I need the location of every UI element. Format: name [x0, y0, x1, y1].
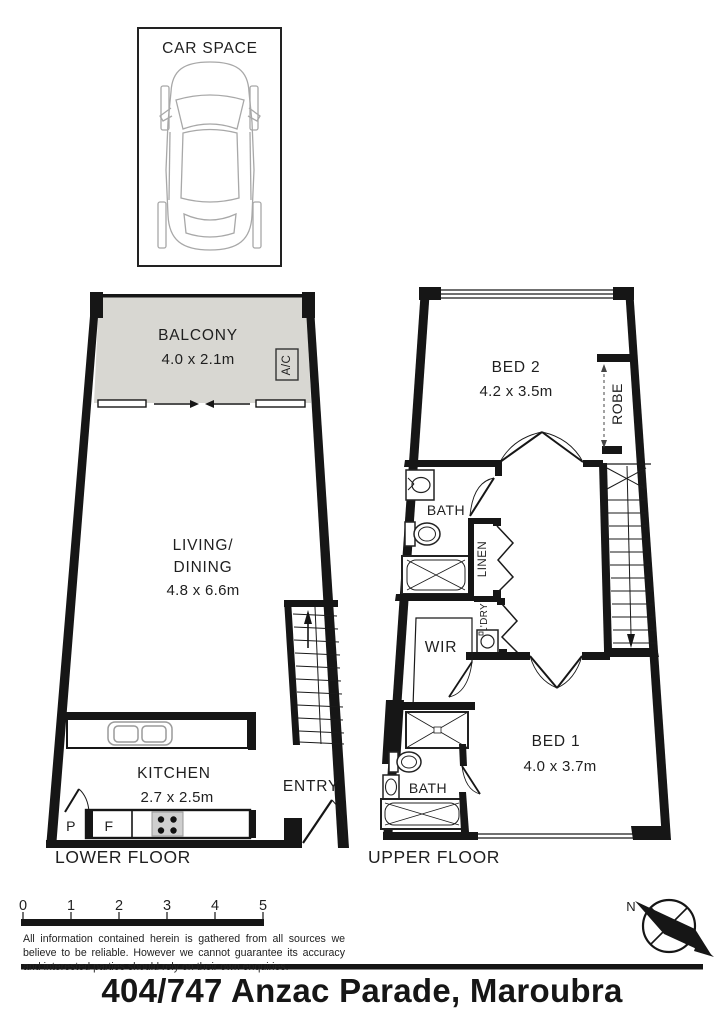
- upper-floor-plan: BED 2 4.2 x 3.5m ROBE: [368, 287, 671, 867]
- shower-icon: [406, 712, 468, 748]
- toilet-icon: [405, 522, 440, 546]
- floorplan-drawing: CAR SPACE BALCONY 4.0 x 2.1m: [0, 0, 724, 1024]
- balcony-dims: 4.0 x 2.1m: [161, 351, 234, 368]
- living-dining-room: LIVING/ DINING 4.8 x 6.6m: [166, 537, 239, 599]
- scale-tick-1: 1: [67, 898, 75, 914]
- floorplan-page: CAR SPACE BALCONY 4.0 x 2.1m: [0, 0, 724, 1024]
- washing-machine-icon: [477, 630, 498, 653]
- bath-door-icon: [470, 478, 494, 516]
- lower-left-wall: [46, 292, 100, 848]
- bed1-dims: 4.0 x 3.7m: [523, 758, 596, 775]
- bed1-window: [478, 834, 637, 838]
- pantry-door-icon: [65, 789, 89, 812]
- north-label: N: [626, 899, 635, 914]
- upper-floor-label: UPPER FLOOR: [368, 847, 500, 867]
- compass-icon: N: [626, 899, 714, 957]
- lower-floor-plan: BALCONY 4.0 x 2.1m A/C LIVING/ DIN: [46, 292, 349, 867]
- vanity-sink-icon: [406, 470, 434, 500]
- linen-label: LINEN: [477, 541, 489, 577]
- upper-bottom-wall: [383, 832, 478, 840]
- upper-right-wall: [625, 288, 671, 840]
- car-space-border: [138, 28, 281, 266]
- address-title: 404/747 Anzac Parade, Maroubra: [0, 972, 724, 1010]
- bed2-room: BED 2 4.2 x 3.5m: [479, 359, 552, 400]
- bath-main-label: BATH: [427, 502, 465, 518]
- entry-step: [284, 818, 302, 848]
- basin-icon: [383, 775, 399, 799]
- scale-tick-4: 4: [211, 898, 219, 914]
- living-dims: 4.8 x 6.6m: [166, 582, 239, 599]
- ensuite-bath-room: BATH: [381, 700, 480, 832]
- laundry-bifold-icon: [502, 604, 518, 653]
- scale-tick-5: 5: [259, 898, 267, 914]
- bed2-dims: 4.2 x 3.5m: [479, 383, 552, 400]
- bath-main-room: BATH: [395, 460, 502, 601]
- ensuite-door-icon: [462, 766, 480, 794]
- linen-closet: LINEN: [474, 518, 513, 602]
- lower-floor-label: LOWER FLOOR: [55, 847, 191, 867]
- wir-label: WIR: [425, 639, 458, 656]
- wir-door-icon: [449, 662, 472, 697]
- scale-tick-3: 3: [163, 898, 171, 914]
- laundry-label: L'DRY: [479, 603, 490, 633]
- laundry-closet: L'DRY: [477, 598, 518, 656]
- bathtub-icon: [402, 556, 470, 594]
- wir-room: WIR: [396, 618, 475, 710]
- car-space-title: CAR SPACE: [162, 40, 258, 57]
- robe-label: ROBE: [609, 383, 625, 425]
- bed2-label: BED 2: [492, 359, 541, 376]
- bed1-label: BED 1: [532, 733, 581, 750]
- balcony-room: BALCONY 4.0 x 2.1m A/C: [90, 292, 315, 408]
- kitchen-area: KITCHEN 2.7 x 2.5m P F: [64, 712, 256, 838]
- bathtub2-icon: [381, 799, 463, 829]
- scale-bar: 0 1 2 3 4 5: [19, 898, 267, 926]
- bath-ensuite-label: BATH: [409, 780, 447, 796]
- sink-icon: [108, 722, 172, 745]
- scale-bar-line: [21, 919, 264, 926]
- bed2-door-icon: [500, 432, 583, 462]
- scale-tick-2: 2: [115, 898, 123, 914]
- scale-tick-0: 0: [19, 898, 27, 914]
- disclaimer-text: All information contained herein is gath…: [23, 933, 345, 975]
- linen-bifold-icon: [497, 526, 513, 592]
- cooktop-icon: [152, 812, 183, 836]
- pantry-label: P: [66, 818, 76, 834]
- living-label-2: DINING: [173, 559, 232, 576]
- bed1-door-icon: [530, 656, 582, 688]
- entry-label: ENTRY: [283, 778, 339, 795]
- car-space-box: CAR SPACE: [138, 28, 281, 266]
- ac-label: A/C: [281, 355, 293, 376]
- living-label-1: LIVING/: [173, 537, 234, 554]
- bed1-room: BED 1 4.0 x 3.7m: [523, 733, 596, 775]
- toilet2-icon: [389, 752, 421, 772]
- upper-top-window: [419, 287, 634, 300]
- balcony-label: BALCONY: [158, 327, 238, 344]
- lower-right-wall: [305, 292, 349, 848]
- fridge-label: F: [104, 818, 113, 834]
- kitchen-label: KITCHEN: [137, 765, 211, 782]
- kitchen-dims: 2.7 x 2.5m: [140, 789, 213, 806]
